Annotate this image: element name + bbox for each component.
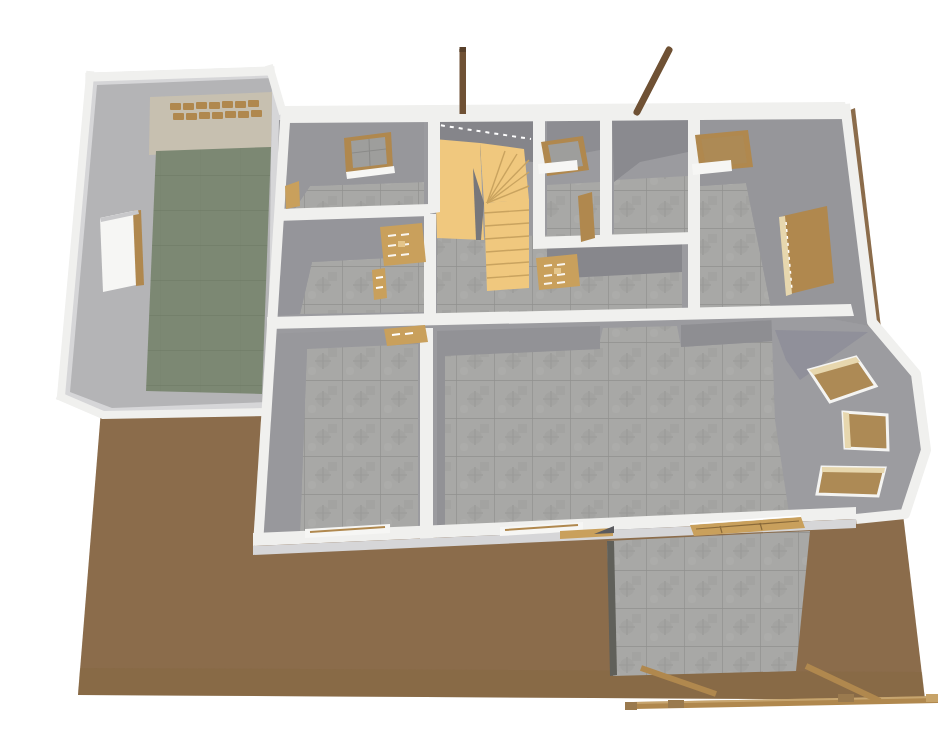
floor-plan-3d-scene[interactable] [0, 0, 938, 750]
garage-side-window[interactable] [100, 210, 144, 292]
wall-v1 [428, 112, 440, 214]
living-room-floor [445, 326, 798, 537]
patio [607, 531, 810, 676]
garage-north-wall-cap [90, 71, 270, 77]
patio-slab [607, 531, 810, 676]
wall-v3 [600, 114, 612, 242]
bay-window [771, 308, 925, 520]
rear-post-2[interactable] [637, 50, 669, 112]
door-slab-standing[interactable] [578, 192, 595, 242]
room-mid-left-floor [300, 256, 424, 314]
door-flat-hall[interactable] [536, 254, 580, 290]
floor-plan-3d-viewport[interactable] [0, 0, 938, 750]
doorway-top-mid-room[interactable] [538, 136, 589, 176]
rear-post-1[interactable] [460, 47, 467, 114]
door-east-wall[interactable] [779, 206, 834, 296]
door-garage-connect[interactable] [285, 181, 300, 209]
garage [61, 67, 282, 417]
room-top-mid2-floor [614, 176, 688, 242]
terrain-shade [78, 668, 925, 700]
wall-v6 [424, 214, 436, 320]
bay-pane-3[interactable] [817, 467, 885, 496]
garage-floor [146, 147, 271, 394]
bay-pane-2[interactable] [843, 412, 888, 450]
wall-v2 [533, 114, 545, 244]
doorway-top-left-room[interactable] [344, 132, 395, 179]
wall-v7 [420, 328, 433, 542]
room-bottom-left-floor [300, 342, 418, 533]
